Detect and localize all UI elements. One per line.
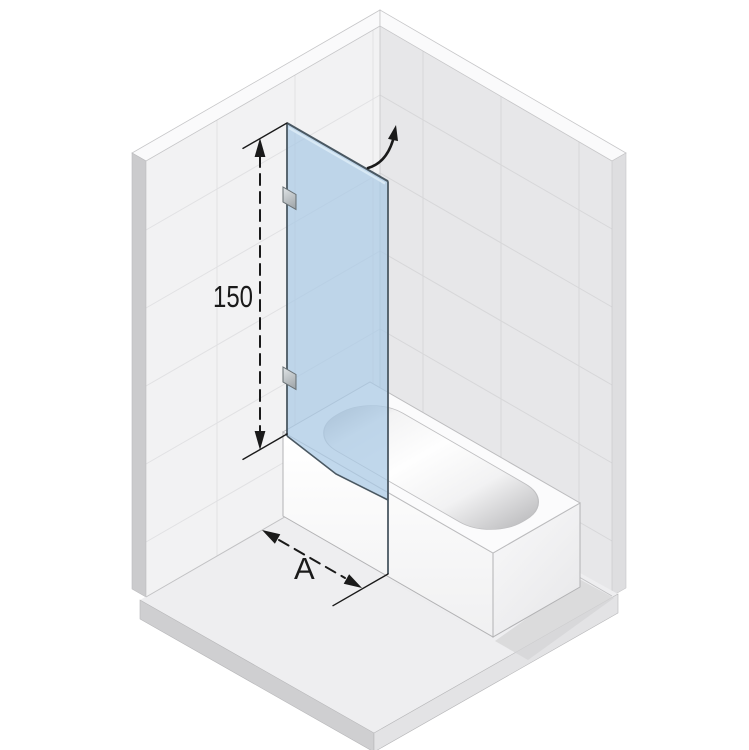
width-dim-label: A [294,551,315,586]
bath-screen-diagram: 150 A [0,0,749,750]
glass-panel [287,123,388,500]
height-dim-label: 150 [213,279,253,314]
wall-outer-edge-right [612,153,626,596]
wall-outer-edge-left [132,153,146,597]
isometric-scene: 150 A [0,0,749,750]
